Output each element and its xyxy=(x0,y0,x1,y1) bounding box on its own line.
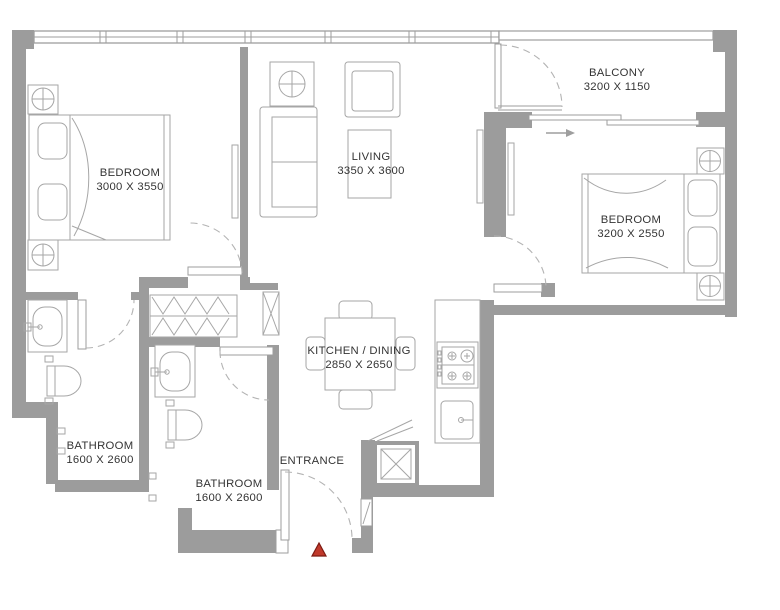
room-label: BATHROOM xyxy=(67,440,134,452)
door-entrance xyxy=(276,470,352,553)
room-balcony: BALCONY 3200 X 1150 xyxy=(584,67,651,93)
bathroom-1-sink-icon xyxy=(24,300,67,352)
floor-plan: BEDROOM 3000 X 3550 LIVING 3350 X 3600 B… xyxy=(0,0,780,610)
floor-plan-canvas: BEDROOM 3000 X 3550 LIVING 3350 X 3600 B… xyxy=(0,0,780,610)
nightstand-lamp-icon xyxy=(28,240,58,270)
room-dims: 1600 X 2600 xyxy=(195,492,262,504)
door-bedroom-1 xyxy=(188,223,242,275)
slide-direction-arrow xyxy=(546,129,575,137)
room-dims: 3350 X 3600 xyxy=(337,165,404,177)
sliding-door-balcony xyxy=(529,115,699,137)
room-label: BALCONY xyxy=(589,67,645,79)
balcony-railing xyxy=(499,31,713,40)
bathroom-2-toilet-icon xyxy=(166,400,202,448)
armchair xyxy=(345,62,400,117)
room-bathroom-1: BATHROOM 1600 X 2600 xyxy=(66,440,133,466)
entrance-label: ENTRANCE xyxy=(280,455,345,467)
tv-unit-bedroom-2 xyxy=(508,143,514,215)
plumbing-mark xyxy=(149,473,156,479)
window-band xyxy=(34,31,713,43)
nightstand-lamp-icon xyxy=(697,148,724,174)
utility-box-x-icon xyxy=(368,420,417,485)
room-label: KITCHEN / DINING xyxy=(307,345,410,357)
door-bathroom-1 xyxy=(78,300,134,349)
tv-unit-bedroom-1 xyxy=(232,145,238,218)
room-dims: 3000 X 3550 xyxy=(96,181,163,193)
bathroom-1-toilet-icon xyxy=(45,356,81,404)
room-dims: 2850 X 2650 xyxy=(325,359,392,371)
coffee-table xyxy=(348,130,391,198)
room-label: BATHROOM xyxy=(196,478,263,490)
room-dims: 1600 X 2600 xyxy=(66,454,133,466)
entrance-marker-icon xyxy=(312,543,326,556)
plumbing-mark xyxy=(57,448,65,454)
door-bedroom-2 xyxy=(494,236,546,292)
room-label: BEDROOM xyxy=(100,167,160,179)
room-bathroom-2: BATHROOM 1600 X 2600 xyxy=(195,478,262,504)
door-balcony xyxy=(495,44,562,110)
room-label: LIVING xyxy=(352,151,391,163)
shaft-x-icon xyxy=(263,292,279,335)
door-bathroom-2 xyxy=(220,347,273,400)
room-dims: 3200 X 2550 xyxy=(597,228,664,240)
nightstand-lamp-icon xyxy=(28,85,58,114)
plumbing-mark xyxy=(149,495,156,501)
room-dims: 3200 X 1150 xyxy=(584,81,651,93)
plumbing-mark xyxy=(57,428,65,434)
wardrobe xyxy=(150,295,237,337)
room-label: BEDROOM xyxy=(601,214,661,226)
bathroom-2-sink-icon xyxy=(151,345,195,397)
sofa xyxy=(260,107,317,217)
nightstand-lamp-icon xyxy=(697,273,724,300)
tv-unit-living xyxy=(477,130,483,203)
entry-panel xyxy=(361,499,372,526)
side-table-lamp-icon xyxy=(270,62,314,106)
kitchen-sink-icon xyxy=(441,401,473,439)
stove-icon xyxy=(437,342,478,388)
